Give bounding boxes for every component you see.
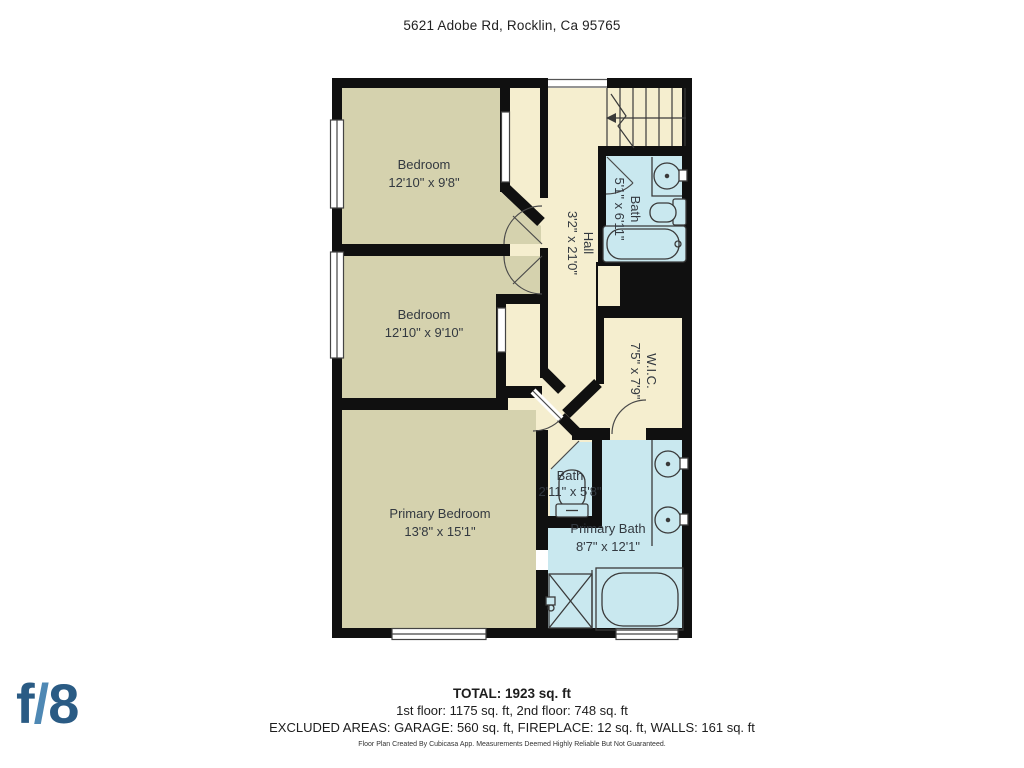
total-area: TOTAL: 1923 sq. ft (0, 686, 1024, 701)
logo-slash: / (33, 672, 49, 735)
logo-eight: 8 (48, 672, 77, 735)
bedroom-1-label: Bedroom (398, 157, 451, 172)
primary-bedroom-label: Primary Bedroom (389, 506, 490, 521)
bath-upper-dims: 5'1" x 6'11" (612, 177, 627, 240)
bedroom-1-dims: 12'10" x 9'8" (388, 175, 460, 190)
page: 5621 Adobe Rd, Rocklin, Ca 95765 (0, 0, 1024, 768)
wic-door-opening (610, 428, 646, 440)
f8-logo: f/8 (16, 676, 77, 732)
bedroom-2-label: Bedroom (398, 307, 451, 322)
excluded-areas: EXCLUDED AREAS: GARAGE: 560 sq. ft, FIRE… (0, 720, 1024, 735)
summary-footer: TOTAL: 1923 sq. ft 1st floor: 1175 sq. f… (0, 686, 1024, 748)
disclaimer-text: Floor Plan Created By Cubicasa App. Meas… (0, 741, 1024, 748)
closet-1-sliding-door (502, 112, 510, 182)
logo-f: f (16, 672, 33, 735)
primary-bath-label: Primary Bath (570, 521, 645, 536)
closet-2-sliding-door (498, 308, 506, 352)
floor-areas: 1st floor: 1175 sq. ft, 2nd floor: 748 s… (0, 703, 1024, 718)
bath-toilet-dims: 2'11" x 5'8" (538, 484, 601, 499)
primary-bedroom-dims: 13'8" x 15'1" (404, 524, 476, 539)
wic-dims: 7'5" x 7'9" (628, 343, 643, 400)
bath-toilet-label: Bath (557, 468, 584, 483)
void-notch (598, 266, 620, 306)
hall-dims: 3'2" x 21'0" (565, 211, 580, 275)
bedroom-2-dims: 12'10" x 9'10" (385, 325, 464, 340)
wic-label: W.I.C. (644, 353, 659, 388)
bedroom-2-entry-floor (496, 256, 540, 294)
hall-label: Hall (581, 232, 596, 255)
primary-bath-opening (536, 550, 548, 570)
primary-bath-dims: 8'7" x 12'1" (576, 539, 640, 554)
bath-upper-label: Bath (628, 196, 643, 223)
floor-plan: Bedroom 12'10" x 9'8" Bedroom 12'10" x 9… (0, 0, 1024, 768)
